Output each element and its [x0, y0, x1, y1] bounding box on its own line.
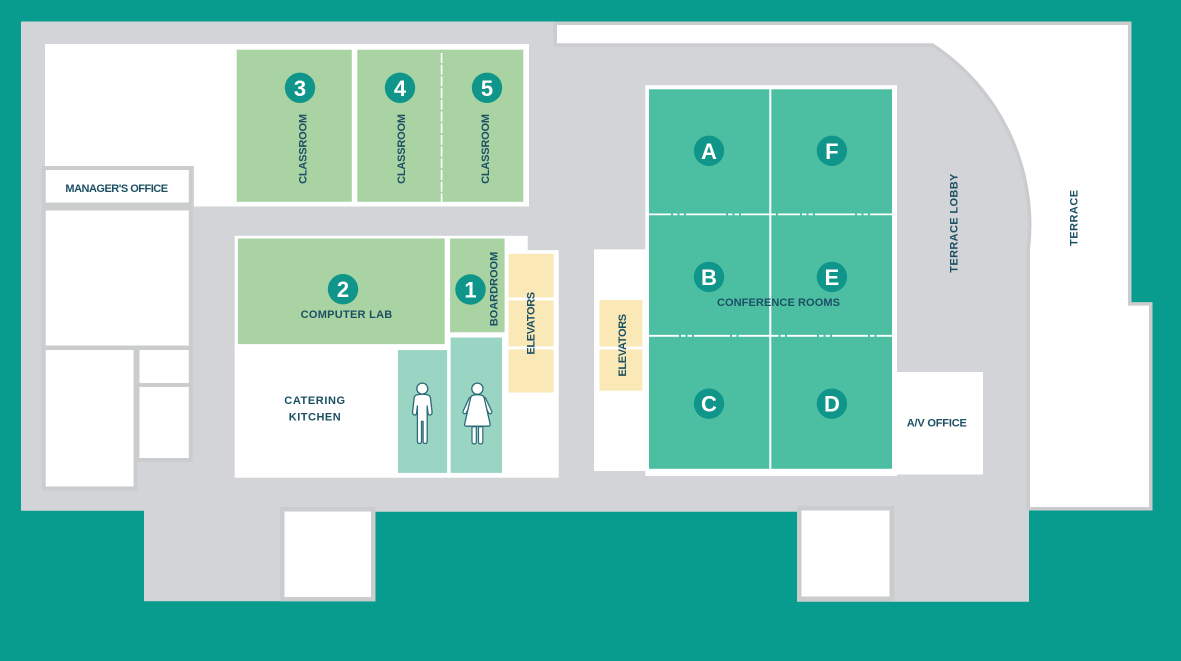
svg-text:COMPUTER LAB: COMPUTER LAB [301, 309, 393, 321]
svg-text:1: 1 [464, 278, 476, 303]
svg-text:C: C [701, 392, 717, 417]
svg-text:A/V OFFICE: A/V OFFICE [907, 417, 967, 429]
svg-text:D: D [824, 392, 840, 417]
svg-text:TERRACE: TERRACE [1069, 189, 1081, 246]
svg-text:MANAGER'S OFFICE: MANAGER'S OFFICE [65, 183, 167, 195]
svg-text:CLASSROOM: CLASSROOM [297, 114, 309, 184]
svg-text:CLASSROOM: CLASSROOM [396, 114, 408, 184]
svg-text:CONFERENCE ROOMS: CONFERENCE ROOMS [717, 297, 840, 309]
svg-text:B: B [701, 265, 717, 290]
svg-text:TERRACE LOBBY: TERRACE LOBBY [949, 173, 961, 273]
svg-text:A: A [701, 139, 717, 164]
svg-text:5: 5 [481, 76, 493, 101]
svg-text:CLASSROOM: CLASSROOM [480, 114, 492, 184]
svg-text:E: E [825, 265, 840, 290]
svg-text:ELEVATORS: ELEVATORS [526, 292, 538, 354]
svg-text:CATERING: CATERING [284, 395, 345, 407]
svg-text:2: 2 [337, 277, 349, 302]
svg-text:3: 3 [294, 76, 306, 101]
svg-text:F: F [825, 139, 838, 164]
svg-text:BOARDROOM: BOARDROOM [489, 252, 501, 327]
svg-text:4: 4 [394, 76, 407, 101]
svg-text:KITCHEN: KITCHEN [289, 412, 341, 424]
svg-text:ELEVATORS: ELEVATORS [617, 314, 629, 376]
